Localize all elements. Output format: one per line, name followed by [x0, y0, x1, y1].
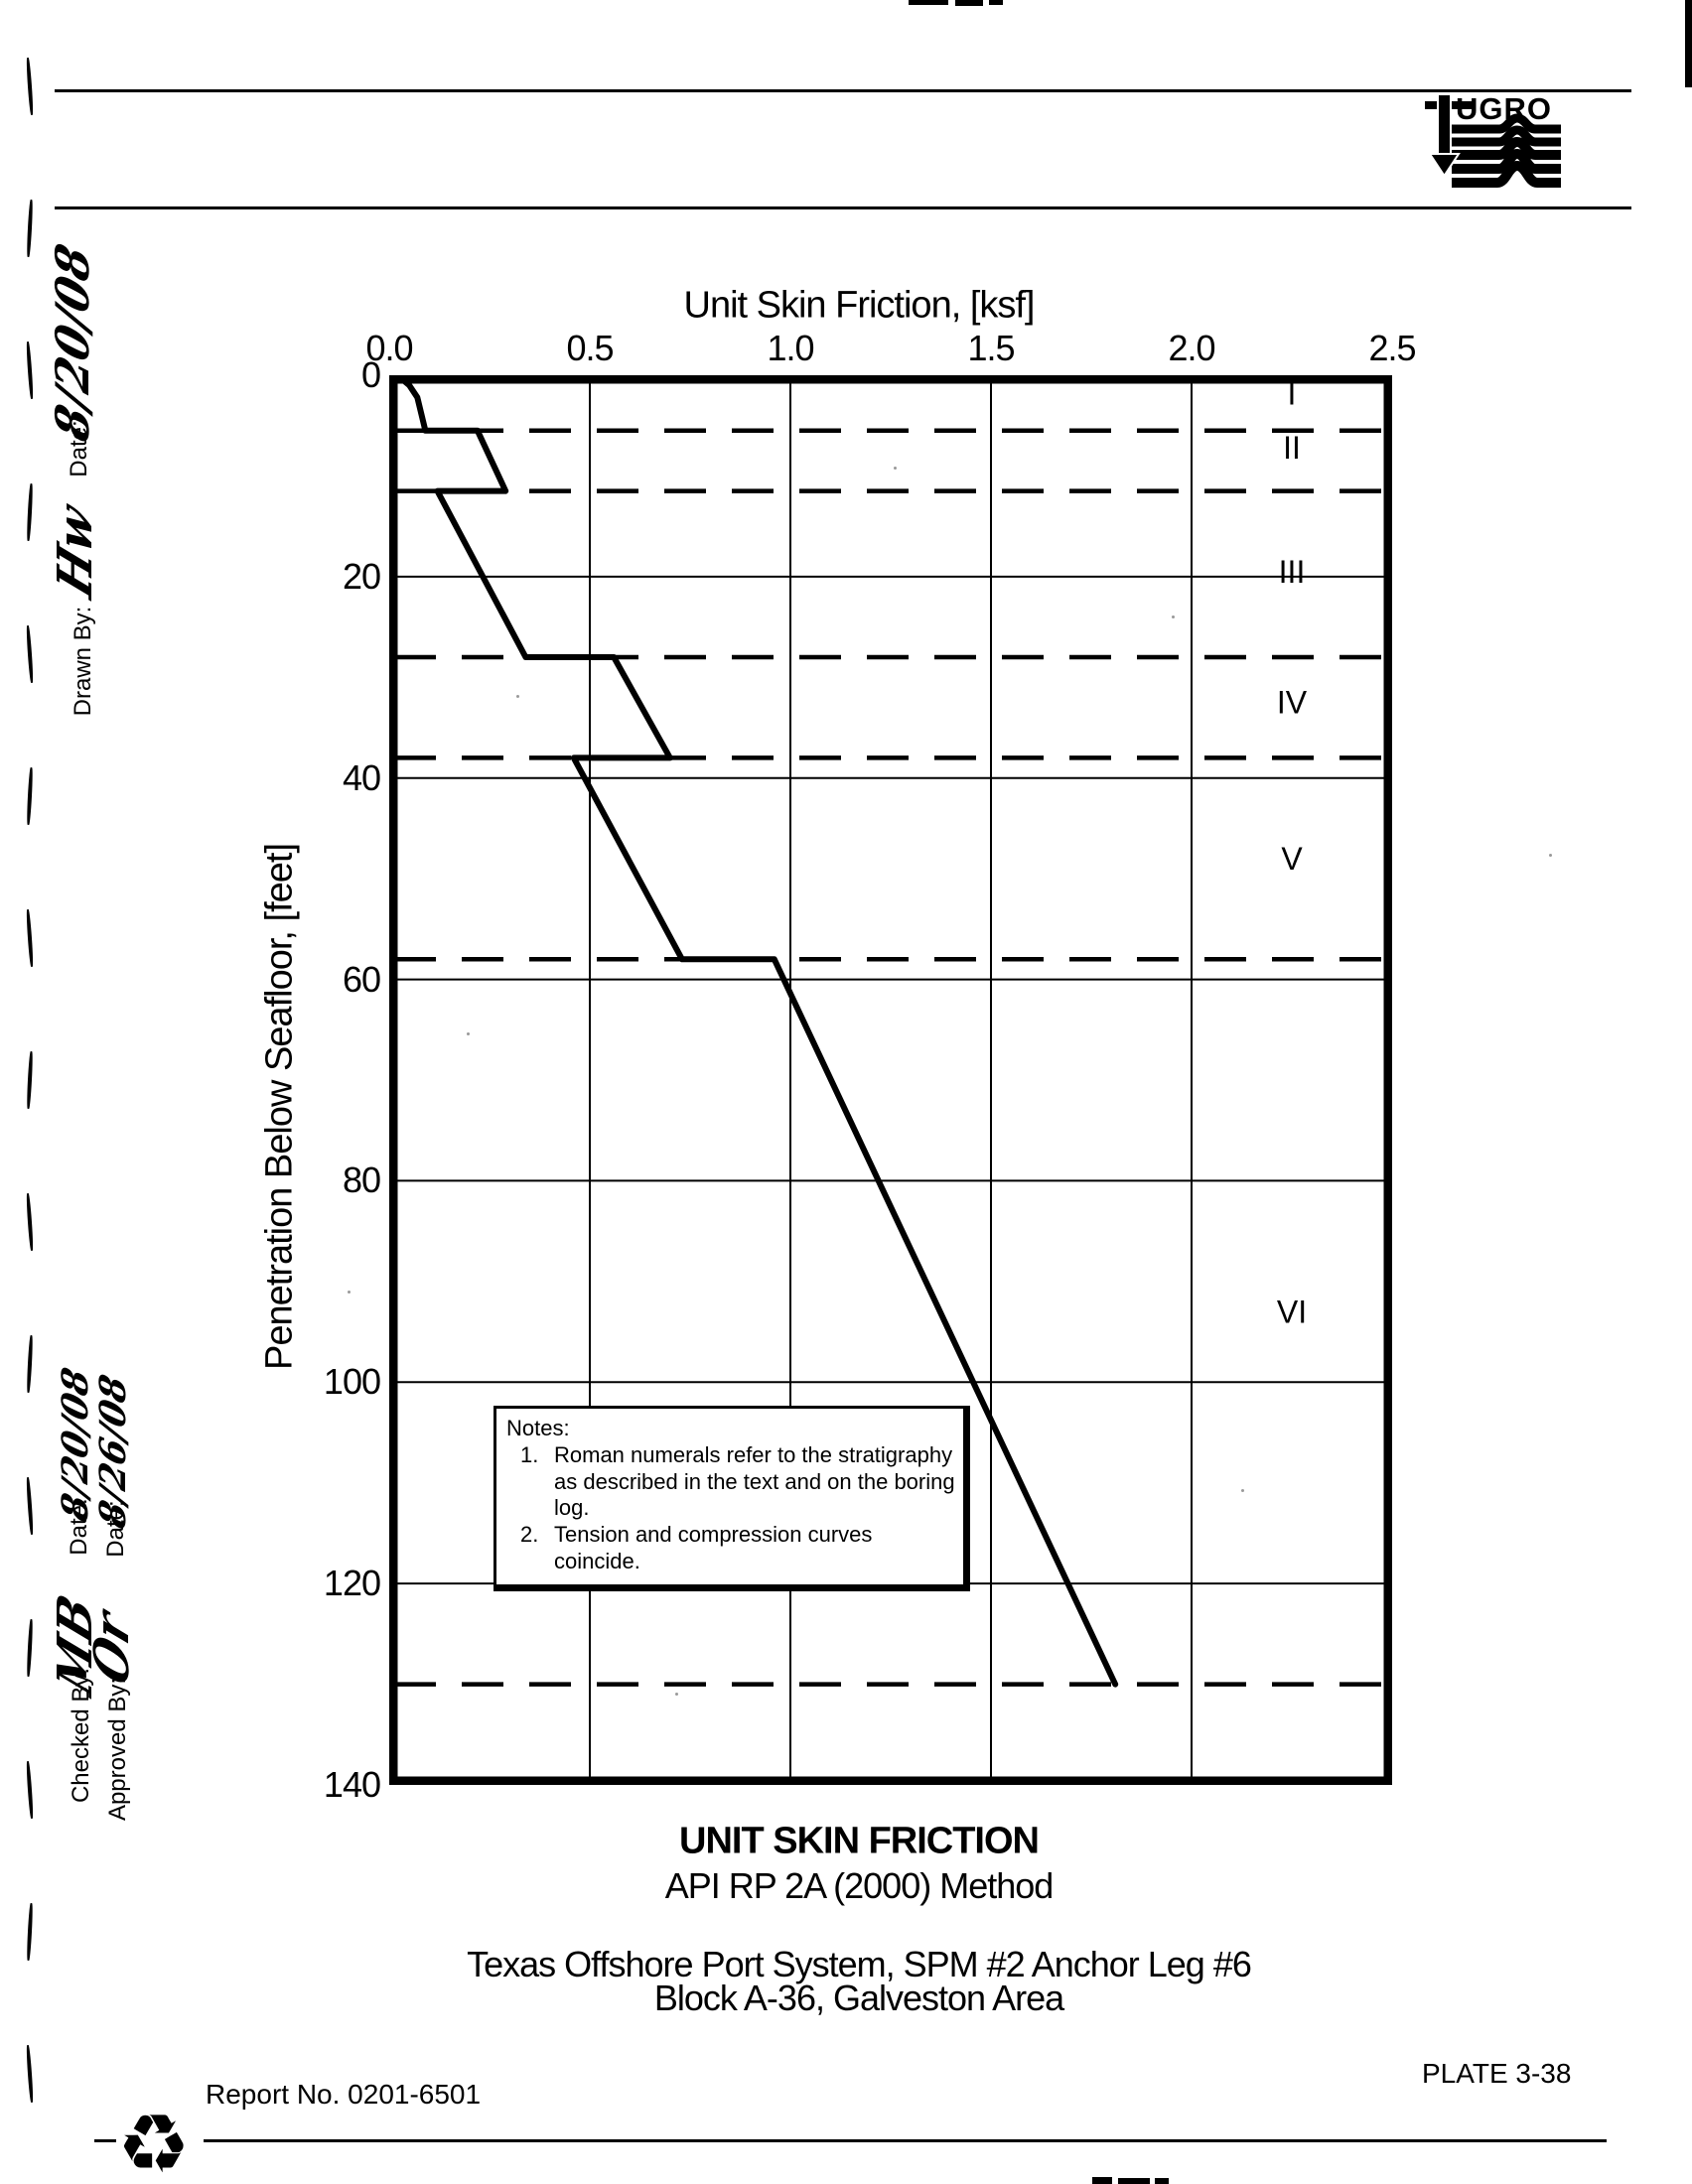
notes-box: Notes: 1. Roman numerals refer to the st… [493, 1406, 970, 1591]
notes-heading: Notes: [506, 1416, 955, 1442]
plate-location: Block A-36, Galveston Area [654, 1978, 1063, 2019]
binding-mark [26, 2045, 34, 2103]
binding-mark [26, 1193, 34, 1251]
x-tick-label: 2.5 [1368, 328, 1415, 369]
binding-mark [26, 1619, 33, 1677]
stratum-label-I: I [1288, 375, 1297, 411]
approved-date-label: Date: [102, 1500, 130, 1557]
y-tick-label: 80 [343, 1160, 380, 1201]
stratum-label-V: V [1281, 841, 1303, 877]
scan-artifact [1092, 2177, 1112, 2184]
binding-mark [26, 58, 34, 115]
note-number: 1. [520, 1442, 554, 1522]
scan-artifact [909, 0, 948, 5]
scan-artifact [1685, 0, 1692, 87]
footer-rule-dash [94, 2139, 116, 2142]
plate-title: UNIT SKIN FRICTION [679, 1821, 1039, 1863]
note-number: 2. [520, 1522, 554, 1575]
stratum-label-IV: IV [1277, 685, 1308, 721]
stratum-label-III: III [1279, 554, 1306, 590]
approved-by-label: Approved By: [104, 1678, 132, 1821]
binding-mark [26, 767, 33, 825]
binding-mark [26, 1051, 33, 1109]
report-number: Report No. 0201-6501 [206, 2079, 481, 2111]
stratum-label-VI: VI [1277, 1294, 1307, 1329]
scan-artifact [955, 0, 983, 6]
note-text: Tension and compression curves coincide. [554, 1522, 955, 1575]
y-tick-label: 140 [324, 1764, 380, 1806]
binding-mark [26, 1477, 34, 1535]
note-item: 2. Tension and compression curves coinci… [520, 1522, 955, 1575]
x-tick-label: 1.5 [967, 328, 1014, 369]
binding-mark [26, 483, 33, 541]
note-item: 1. Roman numerals refer to the stratigra… [520, 1442, 955, 1522]
y-axis-title: Penetration Below Seafloor, [feet] [259, 844, 302, 1370]
x-tick-label: 1.0 [767, 328, 813, 369]
drawn-by-label: Drawn By: [70, 607, 97, 717]
recycle-icon: ♻ [117, 2105, 191, 2184]
y-tick-label: 120 [324, 1563, 380, 1604]
binding-mark [26, 1335, 33, 1393]
footer-rule [204, 2139, 1607, 2142]
binding-mark [26, 1903, 33, 1961]
binding-mark [26, 625, 34, 683]
x-axis-title: Unit Skin Friction, [ksf] [684, 285, 1035, 328]
y-tick-label: 20 [343, 556, 380, 598]
drawn-date-label: Date: [66, 420, 93, 477]
y-tick-label: 0 [361, 354, 380, 396]
binding-mark [26, 200, 33, 257]
drawn-by-signature: Hw [48, 496, 103, 605]
drawn-date-handwritten: 8/20/08 [46, 237, 99, 447]
binding-mark [26, 1761, 34, 1819]
plate-number: PLATE 3-38 [1422, 2058, 1571, 2090]
binding-mark [26, 909, 34, 967]
scanned-plate-page: UGRO 8/20/08 Date: Hw Drawn By: 8/20/08 … [0, 0, 1692, 2184]
y-tick-label: 40 [343, 757, 380, 799]
header-rule-bottom [55, 206, 1631, 209]
x-tick-label: 0.5 [566, 328, 613, 369]
fugro-wordmark: UGRO [1456, 92, 1552, 126]
scan-artifact [1155, 2178, 1169, 2184]
y-tick-label: 100 [324, 1361, 380, 1403]
binding-mark [26, 341, 34, 399]
plate-method: API RP 2A (2000) Method [665, 1865, 1054, 1907]
note-text: Roman numerals refer to the stratigraphy… [554, 1442, 955, 1522]
scan-artifact [1118, 2178, 1150, 2184]
checked-by-label: Checked By: [68, 1668, 95, 1803]
scan-artifact [989, 0, 1003, 5]
header-rule-top [55, 89, 1631, 92]
y-tick-label: 60 [343, 959, 380, 1001]
fugro-logo-graphic: UGRO [1422, 92, 1561, 188]
fugro-logo: UGRO [1422, 92, 1561, 188]
checked-date-label: Date: [66, 1498, 93, 1555]
x-tick-label: 2.0 [1168, 328, 1214, 369]
stratum-label-II: II [1283, 430, 1301, 466]
